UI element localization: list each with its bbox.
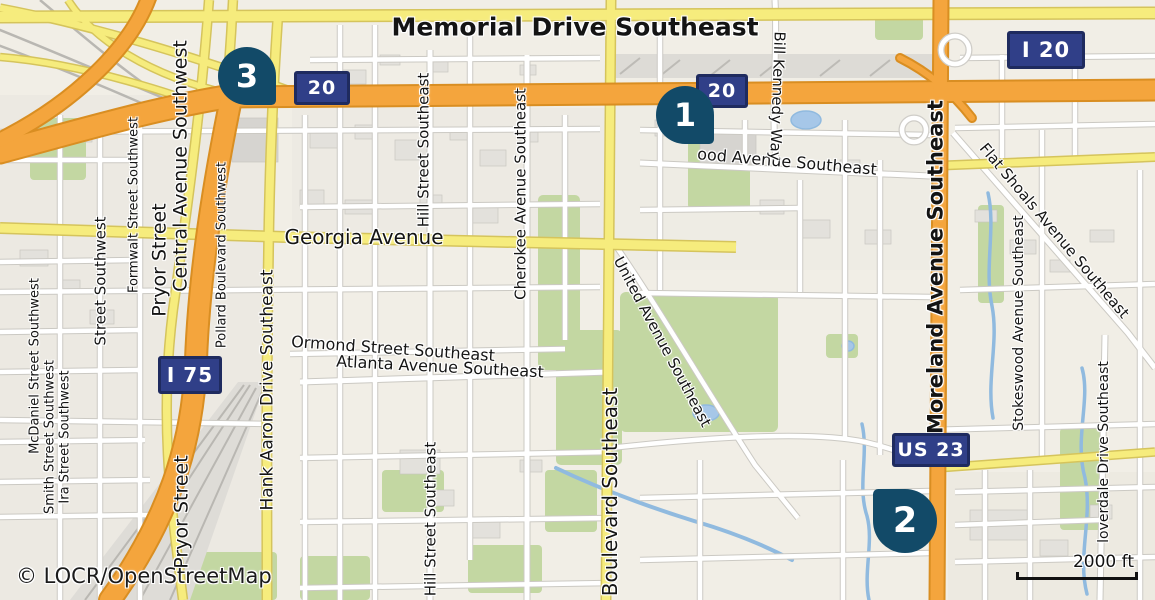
scale-bar-rule (1016, 572, 1138, 580)
map-marker-2[interactable]: 2 (873, 489, 937, 553)
route-shield-4-us-23: US 23 (892, 433, 970, 467)
route-shield-2-i-20: I 20 (1007, 31, 1085, 69)
map-canvas[interactable] (0, 0, 1155, 600)
scale-bar-label: 2000 ft (1016, 552, 1138, 572)
route-shield-3-i-75: I 75 (158, 356, 222, 394)
map-viewport[interactable]: © LOCR/OpenStreetMap 2000 ft Memorial Dr… (0, 0, 1155, 600)
route-shield-0-20: 20 (294, 71, 350, 105)
map-attribution: © LOCR/OpenStreetMap (16, 564, 272, 588)
map-marker-3-number: 3 (236, 57, 258, 95)
map-marker-1-number: 1 (674, 96, 696, 134)
map-marker-3[interactable]: 3 (218, 47, 276, 105)
map-marker-2-number: 2 (893, 501, 917, 541)
map-marker-1[interactable]: 1 (656, 86, 714, 144)
scale-bar: 2000 ft (1016, 552, 1138, 580)
